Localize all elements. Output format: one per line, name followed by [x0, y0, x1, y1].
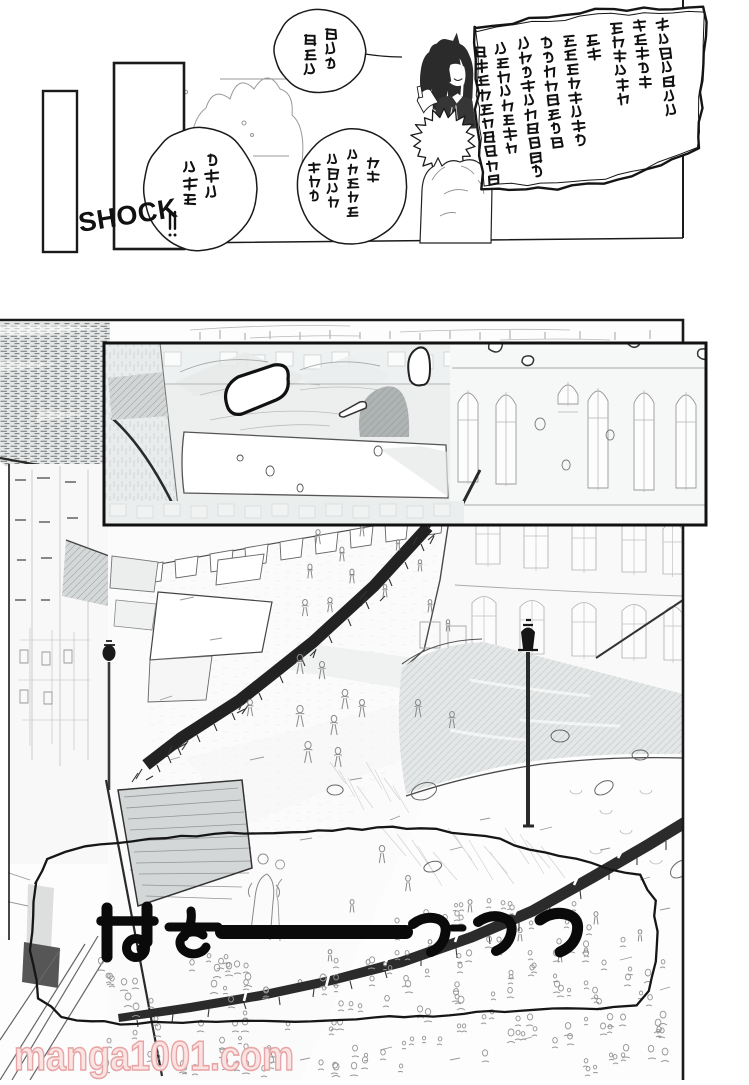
svg-text:manga1001.com: manga1001.com: [14, 1032, 294, 1079]
